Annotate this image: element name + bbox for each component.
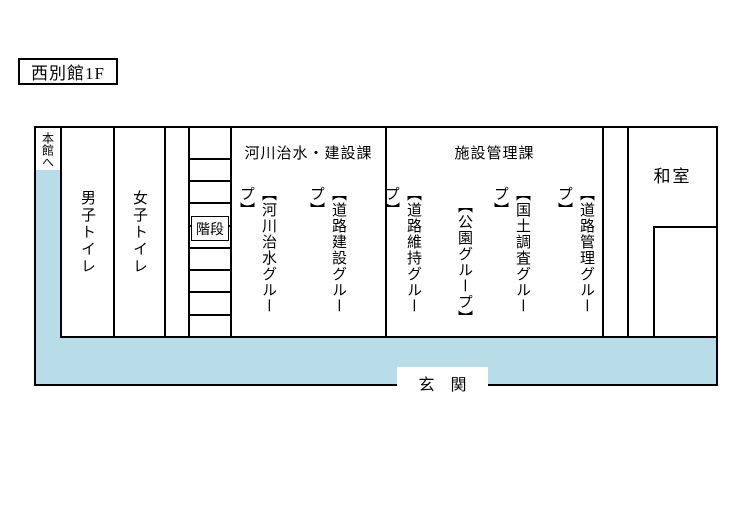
corridor-to-main-label: 本館へ — [36, 130, 60, 170]
entrance-label: 玄 関 — [397, 367, 488, 398]
page: { "title": "西別館1F", "colors": { "corrido… — [0, 0, 740, 524]
stair-step — [190, 180, 230, 182]
stairs-text: 階段 — [196, 219, 224, 239]
mens-toilet-label: 男子トイレ — [77, 190, 98, 275]
entrance-text: 玄 関 — [418, 371, 466, 395]
wall — [60, 336, 716, 338]
wall — [653, 226, 716, 228]
entrance-corridor — [36, 336, 716, 384]
stair-step — [190, 202, 230, 204]
womens-toilet-label: 女子トイレ — [129, 190, 150, 275]
group-label-park: 【公園グループ】 — [453, 186, 475, 338]
group-label-road-construction: 【道路建設グループ】 — [327, 186, 349, 338]
group-label-land-survey: 【国土調査グループ】 — [511, 186, 533, 338]
floor-plan: 本館へ 男子トイレ 女子トイレ 階段 河川治水・建設課 【河川治水グループ】 【… — [34, 126, 718, 386]
wall — [653, 226, 655, 338]
floor-title: 西別館1F — [18, 58, 118, 85]
corridor-to-main-building — [36, 170, 60, 336]
wall — [627, 128, 629, 338]
group-label-road-management: 【道路管理グループ】 — [575, 186, 597, 338]
division-header-river-construction: 河川治水・建設課 — [232, 142, 385, 163]
wall — [164, 128, 166, 338]
stairs-label: 階段 — [191, 216, 229, 241]
room-womens-toilet: 女子トイレ — [115, 128, 164, 336]
room-japanese-style-label: 和室 — [629, 162, 716, 187]
stair-step — [190, 291, 230, 293]
stair-step — [190, 247, 230, 249]
group-label-road-maintenance: 【道路維持グループ】 — [402, 186, 424, 338]
division-header-facility-management: 施設管理課 — [387, 142, 602, 163]
to-main-building-text: 本館へ — [40, 132, 57, 168]
stair-step — [190, 269, 230, 271]
group-label-river-flood-control: 【河川治水グループ】 — [257, 186, 279, 338]
stair-step — [190, 158, 230, 160]
room-mens-toilet: 男子トイレ — [62, 128, 113, 336]
stair-step — [190, 314, 230, 316]
wall — [602, 128, 604, 338]
floor-title-text: 西別館1F — [31, 59, 105, 84]
